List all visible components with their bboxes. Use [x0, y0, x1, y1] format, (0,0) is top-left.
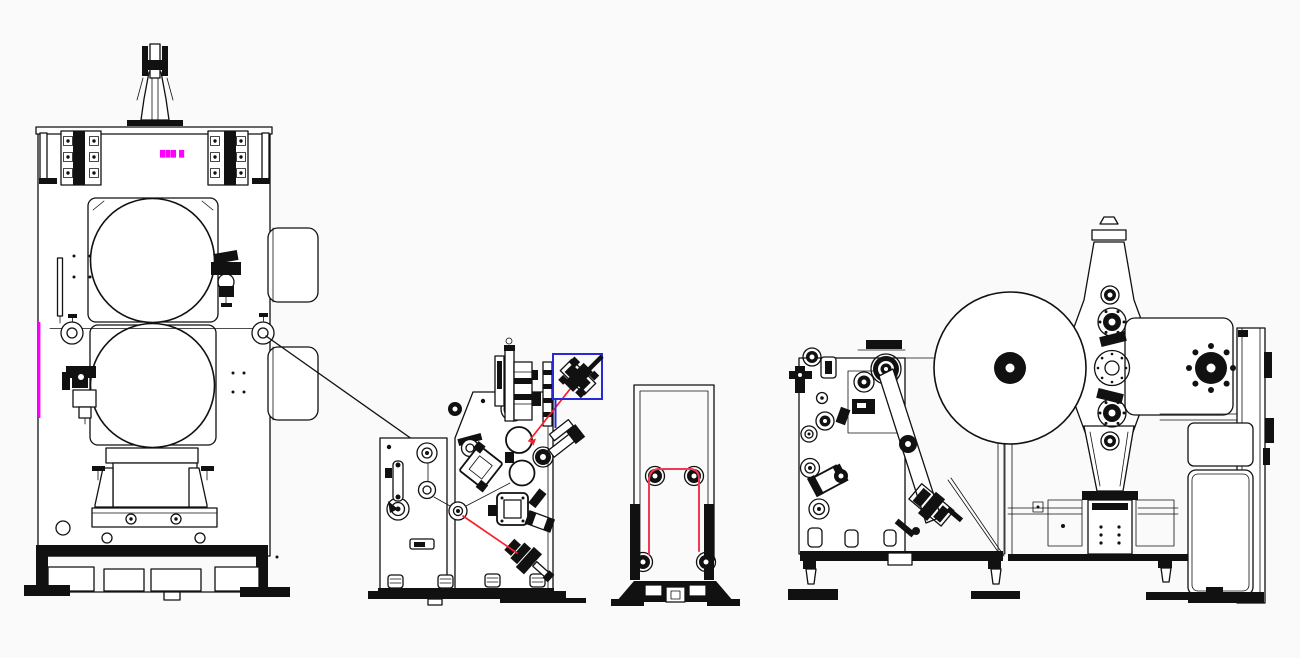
cad-drawing-canvas: ███ █: [0, 0, 1300, 658]
side-gauge-bar: [58, 258, 63, 323]
process-base: [368, 588, 586, 605]
hydraulic-cylinder: [127, 44, 183, 126]
side-protrusion-lower: [268, 347, 318, 420]
press-base: [24, 545, 290, 600]
wound-roll: [934, 292, 1086, 444]
machine-line-drawing: ███ █: [0, 0, 1300, 658]
stand-rollers: [634, 467, 716, 572]
pedestal: [1048, 491, 1174, 554]
coating-roll-2: [510, 461, 535, 486]
process-unit: [368, 338, 604, 605]
upper-roll: [88, 198, 218, 323]
magenta-edge-mark: [38, 322, 40, 418]
winder-machine: [788, 217, 1274, 603]
press-support: [92, 448, 217, 527]
lower-roll: [90, 324, 216, 448]
accumulator-stand: [611, 385, 740, 606]
side-protrusion-upper: [268, 228, 318, 302]
stand-base: [611, 581, 740, 606]
winder-base: [788, 551, 1208, 600]
calender-press-machine: ███ █: [24, 44, 318, 600]
machine-tag-label: ███ █: [159, 149, 185, 158]
coating-roll-1: [506, 427, 532, 453]
slitter-unit: [555, 354, 604, 401]
